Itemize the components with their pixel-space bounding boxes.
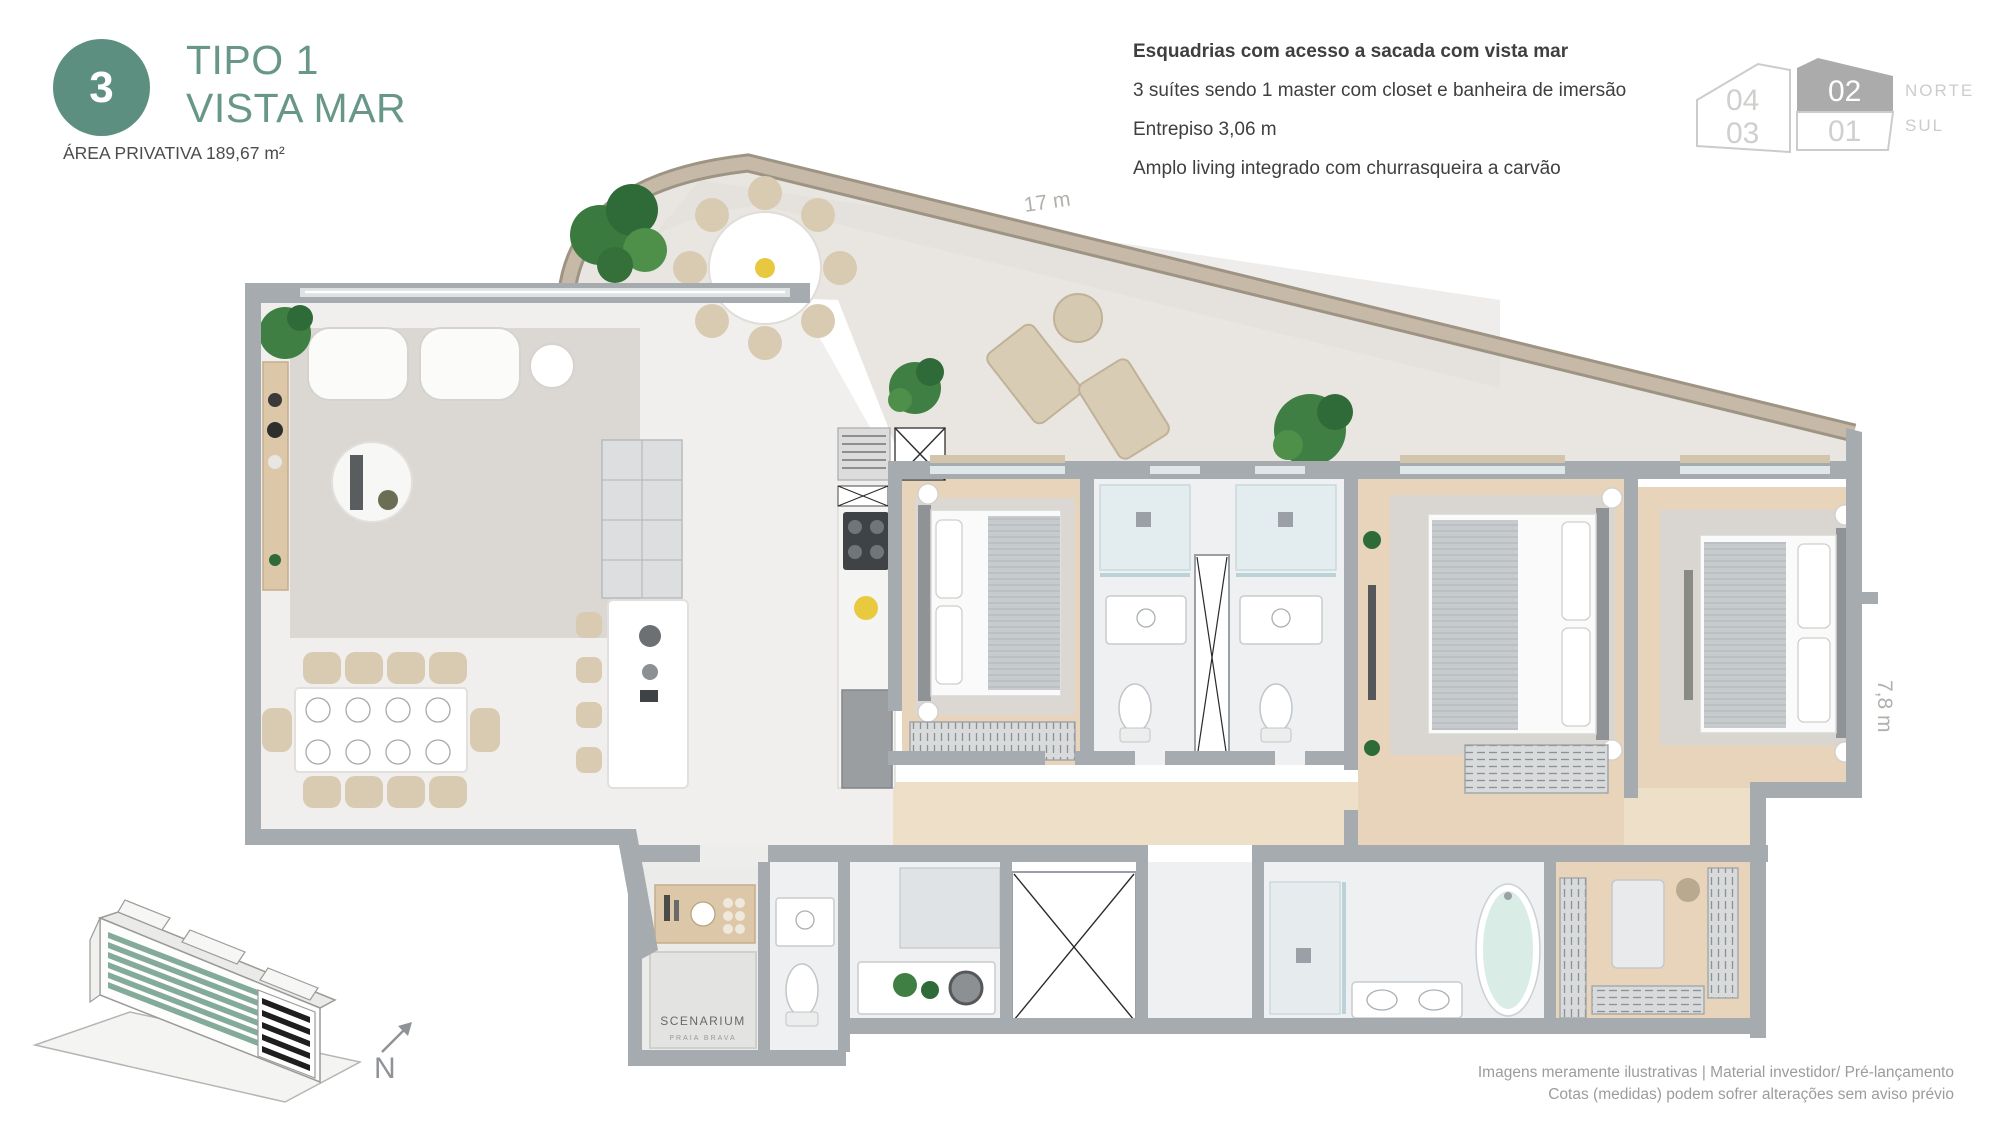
shaft-void: [1012, 872, 1136, 1022]
suite1-bed: [918, 484, 1061, 722]
lobby-logo-line1: SCENARIUM: [660, 1014, 746, 1028]
floor-plan-canvas: 17 m 7,8 m SCENARIUM PRAIA BRAVA 04 03 0…: [0, 0, 2000, 1125]
shelf-unit: [602, 440, 682, 598]
kitchen-counter: [838, 500, 895, 788]
unit-03: 03: [1726, 117, 1759, 150]
north-letter: N: [374, 1052, 396, 1085]
master-bed: [1684, 505, 1855, 762]
north-arrow: N: [374, 1022, 412, 1085]
unit-04: 04: [1726, 84, 1759, 117]
unit-position-key: 04 03 02 01 NORTE SUL: [1697, 58, 1974, 152]
unit-02: 02: [1828, 75, 1861, 108]
lobby-shelf: [655, 885, 755, 943]
terrace-round-table: [673, 176, 857, 360]
shaft-between-baths: [1195, 555, 1229, 760]
grill-vent: [838, 428, 890, 506]
suite2-bed: [1428, 488, 1622, 760]
sul-label: SUL: [1905, 116, 1944, 135]
norte-label: NORTE: [1905, 81, 1974, 100]
dimension-top: 17 m: [1022, 188, 1071, 217]
unit-01: 01: [1828, 115, 1861, 148]
building-illustration: [35, 900, 360, 1102]
dimension-right: 7,8 m: [1873, 680, 1896, 733]
suite2-wardrobe: [1465, 745, 1608, 793]
lobby-logo-line2: PRAIA BRAVA: [669, 1035, 736, 1042]
tv-area: [332, 442, 412, 522]
sideboard: [263, 362, 288, 590]
